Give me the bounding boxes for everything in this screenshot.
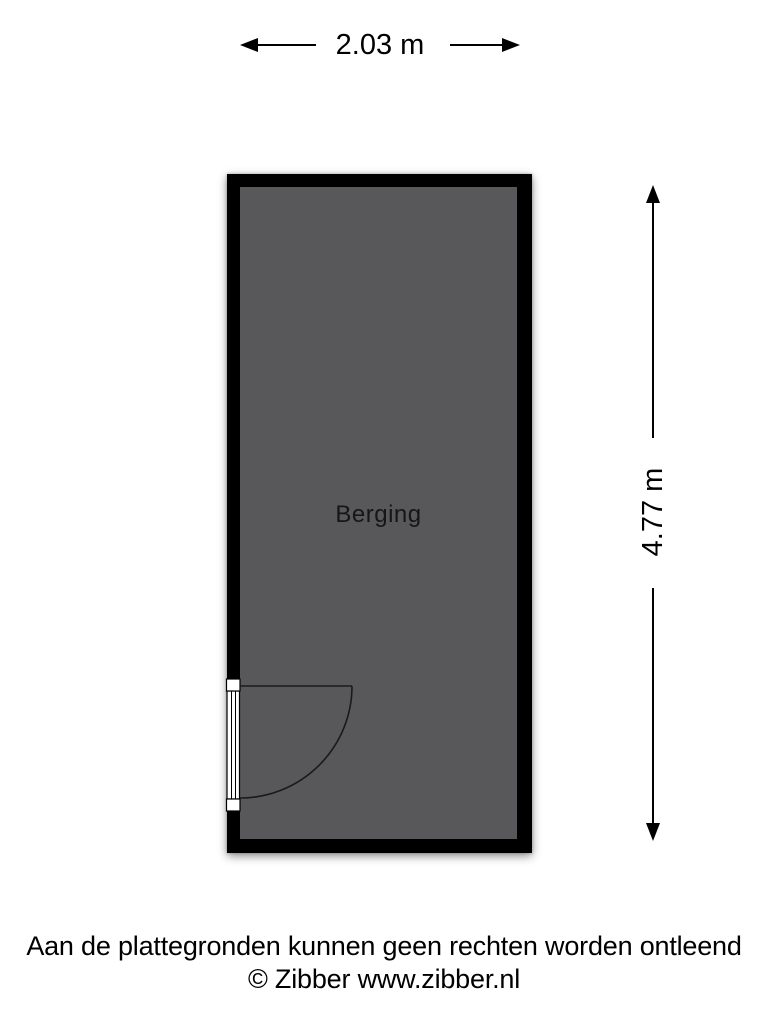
arrow-up-icon [646,185,660,203]
height-dimension-label: 4.77 m [637,468,669,557]
room-label: Berging [335,501,421,529]
room-floor: Berging [240,187,517,839]
height-dimension: 4.77 m [637,185,669,841]
arrow-right-icon [502,38,520,52]
arrow-down-icon [646,823,660,841]
footer-credit: © Zibber www.zibber.nl [0,963,768,996]
width-dimension-label: 2.03 m [336,29,425,61]
room-berging: Berging [227,174,532,853]
floorplan-canvas: Berging 2.03 m 4.77 m [0,0,768,1024]
footer-disclaimer: Aan de plattegronden kunnen geen rechten… [0,930,768,963]
arrow-left-icon [240,38,258,52]
width-dimension: 2.03 m [240,29,520,61]
footer: Aan de plattegronden kunnen geen rechten… [0,930,768,996]
